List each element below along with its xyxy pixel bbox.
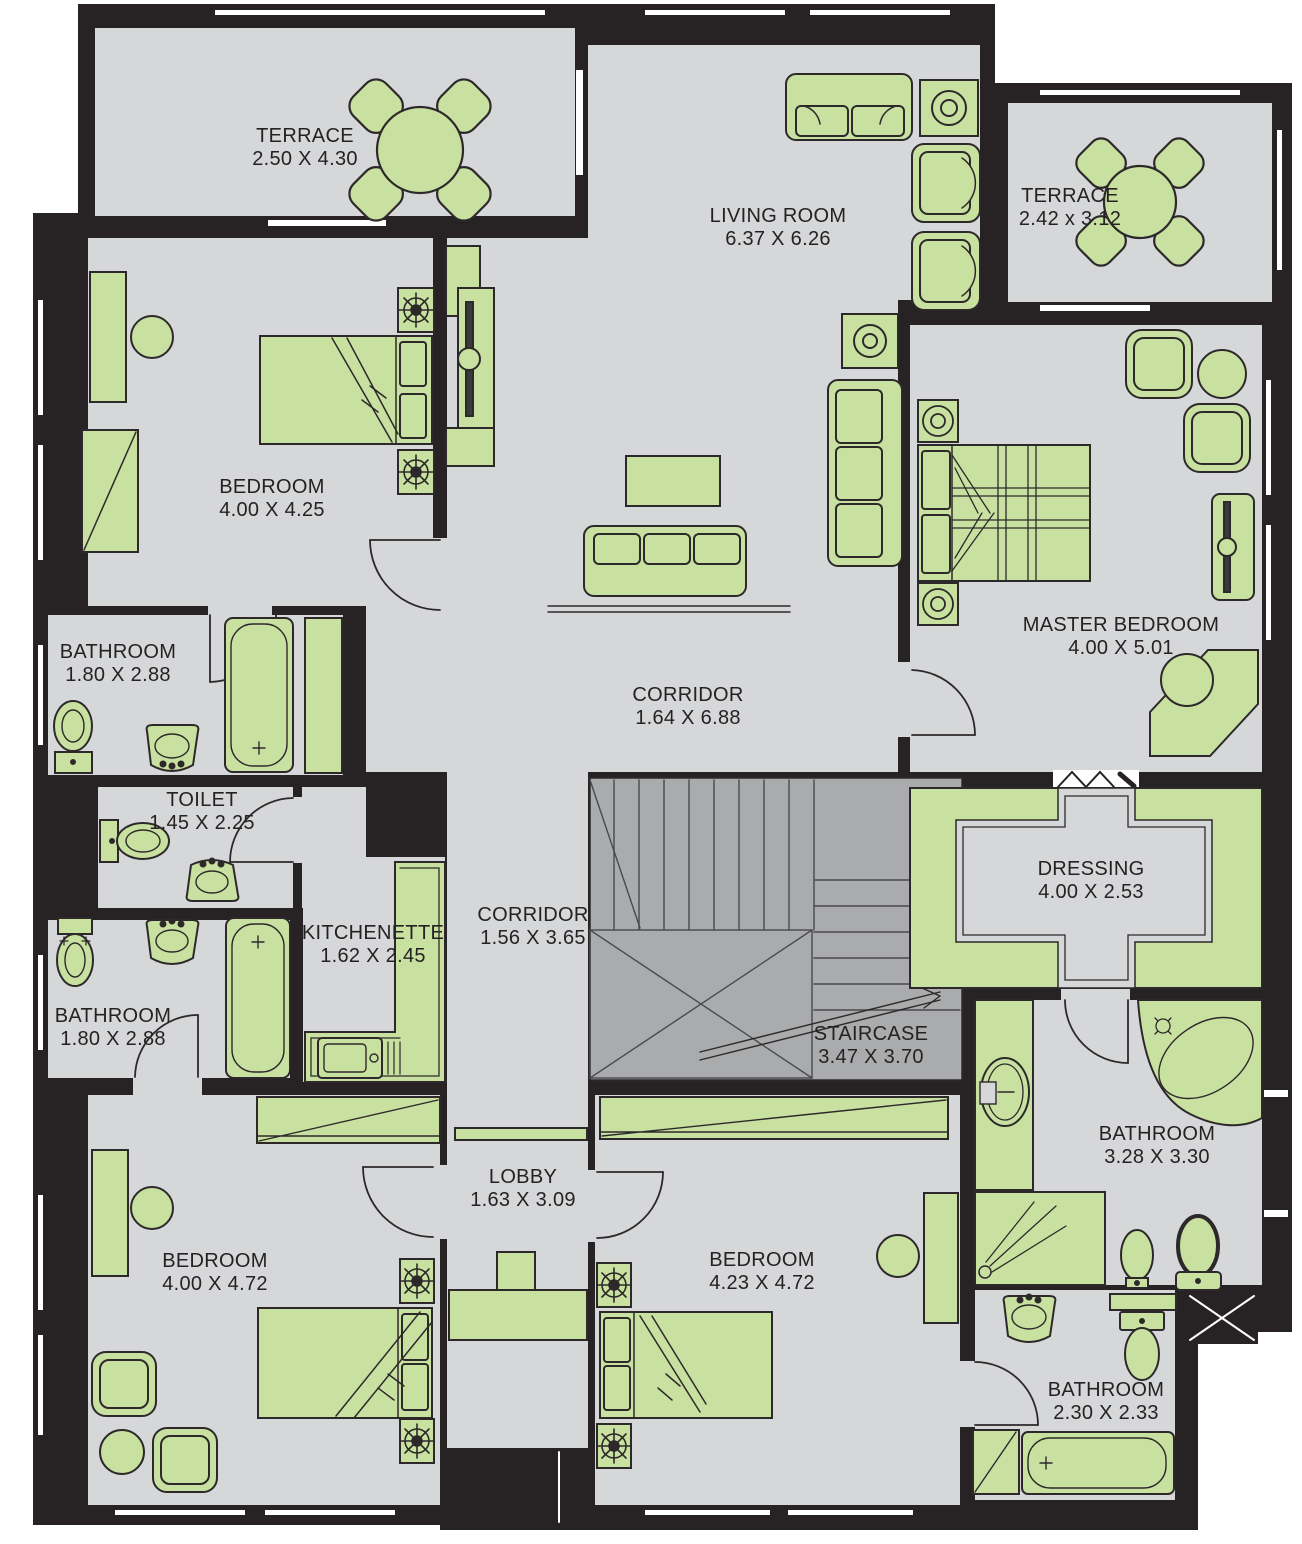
desk-icon (92, 1150, 128, 1276)
shower-icon (975, 1192, 1105, 1285)
floor-terrace-1 (95, 28, 575, 216)
floor-staircase (590, 778, 962, 1080)
ceiling-lamp-icon (597, 1429, 631, 1463)
doormat-icon (497, 1252, 535, 1290)
ceiling-lamp-icon (923, 589, 953, 619)
doormat-icon (449, 1290, 587, 1340)
floor-plan-canvas (0, 0, 1302, 1544)
shelf-icon (305, 618, 342, 773)
desk-chair-icon (877, 1235, 919, 1277)
round-table-icon (1198, 350, 1246, 398)
double-bed-icon (918, 445, 1090, 581)
ceiling-lamp-icon (597, 1268, 631, 1302)
armchair-icon (1126, 330, 1192, 398)
desk-icon (90, 272, 126, 402)
lamp-table-icon (920, 80, 978, 136)
sofa-icon (584, 526, 746, 596)
armchair-icon (1184, 404, 1250, 472)
desk-chair-icon (131, 1187, 173, 1229)
round-table-icon (1161, 654, 1213, 706)
dresser-icon (1212, 494, 1254, 600)
toilet-icon (54, 701, 92, 773)
dressing-cabinet-icon (910, 788, 1262, 988)
desk-chair-icon (131, 316, 173, 358)
round-table-icon (100, 1430, 144, 1474)
bathtub-icon (1022, 1432, 1174, 1494)
double-bed-icon (600, 1312, 772, 1418)
round-dining-table-icon (1104, 166, 1176, 238)
armchair-icon (92, 1352, 156, 1416)
floor-corridor-lobby (447, 772, 588, 1448)
armchair-icon (912, 232, 980, 310)
bathtub-icon (226, 918, 290, 1078)
washbasin-icon (187, 859, 239, 902)
shelf-icon (1110, 1294, 1176, 1310)
kitchen-sink-icon (318, 1038, 400, 1078)
ceiling-lamp-icon (400, 1424, 434, 1458)
armchair-icon (912, 144, 980, 222)
lamp-table-icon (842, 314, 898, 368)
wardrobe-icon (600, 1097, 948, 1139)
wardrobe-icon (973, 1430, 1019, 1494)
bidet-icon (1121, 1230, 1153, 1288)
toilet-icon (100, 820, 169, 862)
shaft-x-icon (1186, 1292, 1258, 1344)
desk-icon (924, 1193, 958, 1323)
sofa-icon (786, 74, 912, 140)
hanger-icon (1053, 770, 1139, 788)
vanity-icon (975, 1000, 1033, 1190)
washbasin-icon (147, 725, 199, 771)
washbasin-icon (1004, 1295, 1056, 1343)
ceiling-lamp-icon (400, 1264, 434, 1298)
double-bed-icon (258, 1308, 432, 1418)
ceiling-lamp-icon (923, 406, 953, 436)
toilet-icon (1176, 1216, 1221, 1290)
washbasin-icon (147, 919, 199, 965)
doormat-icon (455, 1128, 587, 1140)
bidet-icon (57, 918, 93, 986)
sofa-icon (828, 380, 902, 566)
floor-bedroom-3 (595, 1095, 960, 1505)
floor-plan: TERRACE2.50 X 4.30 LIVING ROOM6.37 X 6.2… (0, 0, 1302, 1544)
ceiling-lamp-icon (399, 293, 433, 327)
bathtub-icon (225, 618, 293, 772)
double-bed-icon (260, 336, 432, 444)
armchair-icon (153, 1428, 217, 1492)
wardrobe-icon (82, 430, 138, 552)
round-dining-table-icon (377, 107, 463, 193)
ceiling-lamp-icon (399, 455, 433, 489)
wardrobe-icon (257, 1097, 440, 1143)
coffee-table-icon (626, 456, 720, 506)
